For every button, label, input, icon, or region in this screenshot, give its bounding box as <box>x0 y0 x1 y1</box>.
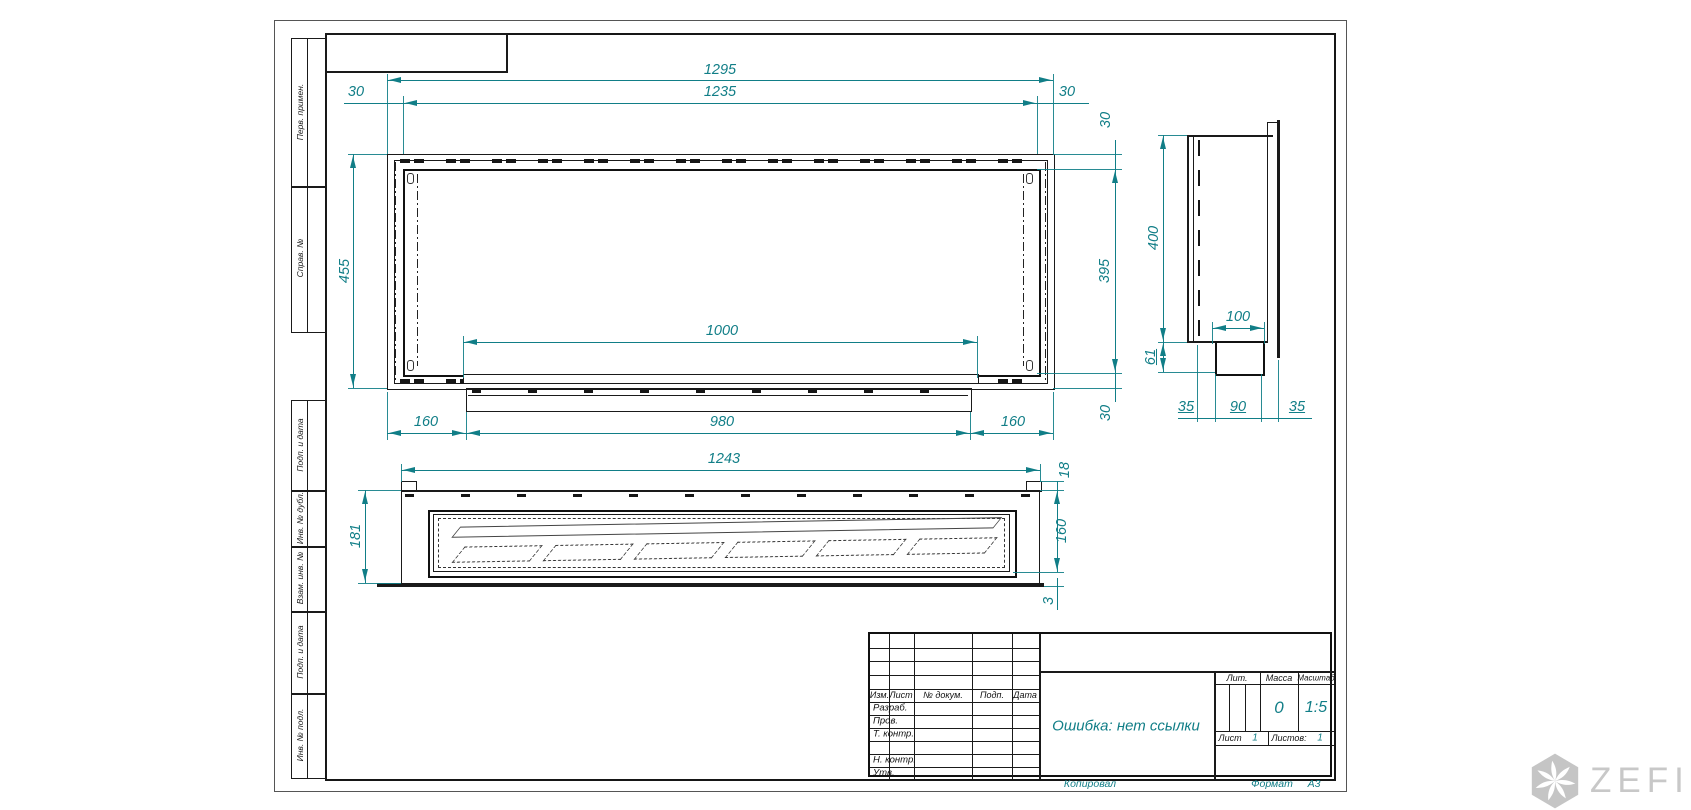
ext-line <box>970 412 971 440</box>
tb-line <box>870 675 1039 676</box>
tb-lit-label: Лит. <box>1226 673 1247 683</box>
dim-line-395 <box>1115 169 1116 373</box>
ext-line <box>1040 490 1064 491</box>
stamp-divider <box>307 401 308 491</box>
ext-line <box>1037 373 1122 374</box>
side-view-front-inner <box>1267 135 1268 342</box>
ext-line <box>466 412 467 440</box>
ext-line <box>1158 372 1215 373</box>
footer-copied-label: Копировал <box>1064 778 1116 790</box>
ext-line <box>1044 586 1064 587</box>
stamp-divider <box>307 612 308 694</box>
burner-slot <box>452 545 543 563</box>
dim-line-181 <box>365 490 366 583</box>
dim-line-1243 <box>401 470 1040 471</box>
tb-scale-value: 1:5 <box>1305 699 1327 717</box>
tb-sheet-label: Лист <box>1218 733 1241 743</box>
stamp-divider <box>307 547 308 612</box>
plan-view-top <box>401 490 1040 492</box>
plan-view-right-side <box>1039 490 1040 583</box>
dim-text-400: 400 <box>1146 226 1162 250</box>
dim-line-30-right <box>1037 103 1089 104</box>
front-view-right-band-centerline <box>1045 162 1046 382</box>
tb-row-nkontr: Н. контр. <box>873 755 916 766</box>
tb-mass-label: Масса <box>1266 673 1293 683</box>
dim-line-160-left <box>387 433 466 434</box>
front-view-hidden-right <box>1023 174 1024 366</box>
front-view-opening-rect <box>403 169 1041 377</box>
front-view-corner-slot <box>407 173 414 184</box>
dim-line-30-left <box>344 103 403 104</box>
ext-line <box>1261 374 1262 422</box>
tb-line <box>1268 731 1269 745</box>
stamp-divider <box>307 491 308 547</box>
dim-line-3 <box>1057 578 1058 610</box>
tb-sheets-label: Листов: <box>1271 733 1306 743</box>
side-view-lip-top <box>1267 122 1278 123</box>
tb-line <box>870 661 1039 662</box>
tb-line <box>1245 684 1246 732</box>
dim-text-30-bottom: 30 <box>1098 405 1114 421</box>
tb-col-dokum: № докум. <box>923 690 963 700</box>
dim-text-100: 100 <box>1226 309 1250 325</box>
brand-watermark: ZEFIRE <box>1528 752 1691 810</box>
brand-watermark-text: ZEFIRE <box>1590 761 1691 801</box>
top-left-stamp-box <box>325 33 508 73</box>
front-view-corner-slot <box>1026 360 1033 371</box>
front-view-corner-slot <box>1026 173 1033 184</box>
burner-slot <box>907 537 998 555</box>
tb-col-list: Лист <box>889 690 912 700</box>
front-view-left-band-centerline <box>395 162 396 382</box>
drawing-canvas: Перв. примен. Справ. № Подп. и дата Инв.… <box>0 0 1691 810</box>
tb-col-data: Дата <box>1013 690 1037 700</box>
dim-text-3: 3 <box>1041 597 1057 605</box>
dim-text-30-top: 30 <box>1098 112 1114 128</box>
dim-line-400 <box>1163 135 1164 342</box>
side-view-lip-side <box>1267 122 1268 135</box>
tb-line <box>1214 671 1216 779</box>
ext-line <box>387 74 388 154</box>
margin-stamp-label: Подп. и дата <box>295 625 305 678</box>
burner-slot <box>725 540 816 558</box>
plan-view-base-plate <box>377 583 1044 587</box>
margin-stamp-label: Перв. примен. <box>295 84 305 141</box>
dim-text-1000: 1000 <box>706 323 738 339</box>
plan-view-left-side <box>401 490 402 583</box>
title-block: Изм. Лист № докум. Подп. Дата Разраб. Пр… <box>868 632 1332 777</box>
tb-line <box>1012 634 1013 779</box>
tb-sheets-value: 1 <box>1317 733 1323 744</box>
dim-text-395: 395 <box>1097 259 1113 283</box>
ext-line <box>1040 481 1064 482</box>
dim-text-455: 455 <box>337 259 353 283</box>
dim-text-1235: 1235 <box>704 84 736 100</box>
tb-line <box>1039 634 1041 779</box>
tb-sheet-value: 1 <box>1252 733 1258 744</box>
dim-text-160-right: 160 <box>1001 414 1025 430</box>
tb-line <box>1214 684 1334 685</box>
dim-line-61 <box>1163 342 1164 372</box>
tb-row-prov: Пров. <box>873 716 898 727</box>
tb-line <box>972 634 973 779</box>
ext-line <box>1197 345 1198 422</box>
dim-line-455 <box>353 154 354 388</box>
dim-text-35-right: 35 <box>1289 399 1305 415</box>
side-view-back-wall-inner <box>1193 137 1194 342</box>
ext-line <box>1215 374 1216 422</box>
ext-line <box>1053 154 1122 155</box>
ext-line <box>1278 360 1279 422</box>
tb-line <box>1229 684 1230 732</box>
dim-text-18: 18 <box>1057 462 1073 478</box>
tb-scale-label: Масштаб <box>1297 674 1334 683</box>
dim-line-35-90-35 <box>1178 418 1312 419</box>
footer-format-value: А3 <box>1308 778 1321 790</box>
margin-stamp-label: Инв. № дубл. <box>295 492 305 544</box>
plan-view-flange-holes <box>405 494 1036 497</box>
dim-text-90: 90 <box>1230 399 1246 415</box>
dim-text-160-plan: 160 <box>1054 519 1070 543</box>
dim-line-30-top <box>1115 140 1116 169</box>
burner-slot <box>543 544 634 562</box>
side-view-top <box>1187 135 1273 137</box>
dim-text-160-left: 160 <box>414 414 438 430</box>
front-view-hidden-left <box>417 174 418 366</box>
stamp-divider <box>307 694 308 778</box>
margin-stamp-label: Справ. № <box>295 239 305 278</box>
tb-line <box>870 741 1039 742</box>
dim-text-61: 61 <box>1143 349 1159 365</box>
margin-stamp-label: Взам. инв. № <box>295 552 305 605</box>
tb-mass-value: 0 <box>1274 698 1283 718</box>
dim-line-30-bottom <box>1115 373 1116 402</box>
tb-col-izm: Изм. <box>870 690 889 700</box>
tb-col-podp: Подп. <box>980 690 1004 700</box>
dim-line-160-right <box>970 433 1053 434</box>
tb-row-razrab: Разраб. <box>873 703 907 714</box>
zefire-hexagon-icon <box>1528 752 1582 810</box>
burner-slot <box>634 542 725 560</box>
side-view-back-wall <box>1187 135 1189 343</box>
front-view-tray-holes <box>472 390 964 393</box>
dim-line-1295 <box>387 80 1053 81</box>
stamp-divider <box>307 187 308 332</box>
tb-row-utv: Утв. <box>873 768 895 779</box>
dim-text-1243: 1243 <box>708 451 740 467</box>
tb-line <box>870 648 1039 649</box>
dim-text-30-left: 30 <box>348 84 364 100</box>
dim-line-980 <box>466 433 970 434</box>
ext-line <box>1037 169 1122 170</box>
front-view-tray-line <box>468 395 968 396</box>
tb-line <box>870 767 1039 768</box>
dim-text-980: 980 <box>710 414 734 430</box>
dim-line-1000 <box>463 342 977 343</box>
tb-line <box>1214 745 1334 746</box>
dim-line-100 <box>1212 328 1264 329</box>
side-view-wall-holes <box>1198 140 1200 340</box>
ext-line <box>1053 388 1122 389</box>
footer-format-label: Формат <box>1251 778 1293 790</box>
stamp-divider <box>307 39 308 187</box>
side-view-spigot <box>1215 341 1265 376</box>
tb-line <box>1260 671 1261 732</box>
front-view-corner-slot <box>407 360 414 371</box>
dim-text-35-left: 35 <box>1178 399 1194 415</box>
tb-row-tkontr: Т. контр. <box>873 729 914 740</box>
dim-text-181: 181 <box>348 524 364 548</box>
front-view-top-mount-holes <box>400 159 1040 163</box>
dim-line-1235 <box>403 103 1037 104</box>
front-view-burner-slot <box>463 374 979 384</box>
ext-line <box>1053 74 1054 154</box>
dim-text-1295: 1295 <box>704 62 736 78</box>
margin-stamp-label: Подп. и дата <box>295 418 305 471</box>
burner-slot <box>816 539 907 557</box>
margin-stamp-label: Инв. № подл. <box>295 709 305 762</box>
side-view-front-flange <box>1277 120 1280 358</box>
dim-text-30-right: 30 <box>1059 84 1075 100</box>
tb-doc-title: Ошибка: нет ссылки <box>1052 718 1200 735</box>
